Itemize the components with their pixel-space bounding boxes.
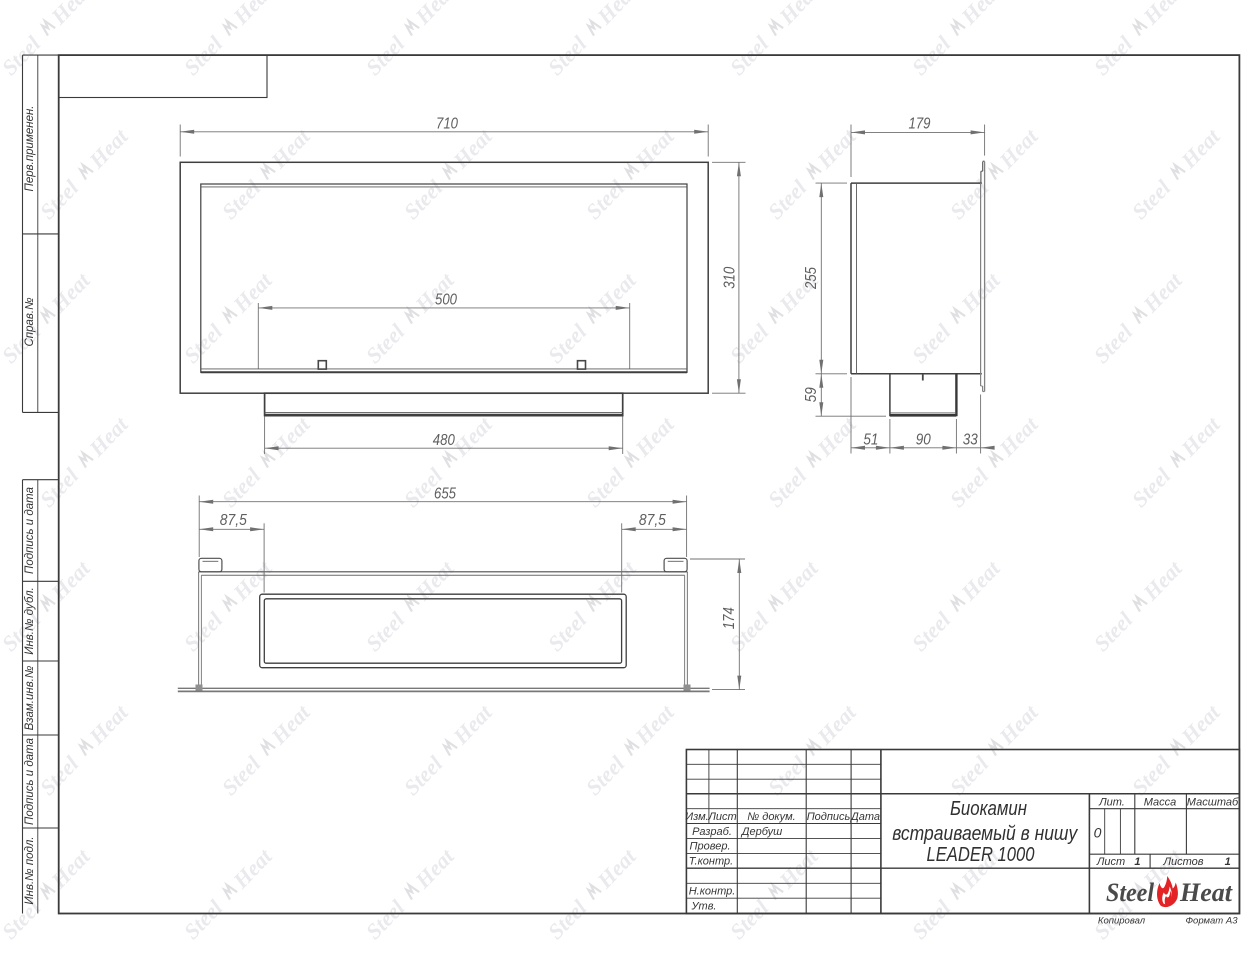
svg-text:51: 51 xyxy=(863,431,878,448)
svg-text:Масса: Масса xyxy=(1144,797,1177,809)
svg-text:Разраб.: Разраб. xyxy=(692,826,732,838)
svg-text:встраиваемый в нишу: встраиваемый в нишу xyxy=(892,823,1078,845)
svg-text:1: 1 xyxy=(1134,856,1140,868)
svg-text:Т.контр.: Т.контр. xyxy=(689,856,733,868)
svg-text:255: 255 xyxy=(803,267,820,290)
svg-text:Инв.№ дубл.: Инв.№ дубл. xyxy=(24,587,36,655)
svg-text:Формат А3: Формат А3 xyxy=(1186,916,1239,927)
svg-text:Биокамин: Биокамин xyxy=(950,798,1027,820)
svg-text:Дербуш: Дербуш xyxy=(740,826,783,838)
svg-text:Подпись и дата: Подпись и дата xyxy=(24,487,36,574)
svg-text:87,5: 87,5 xyxy=(220,512,247,529)
svg-text:87,5: 87,5 xyxy=(639,512,666,529)
svg-text:Лит.: Лит. xyxy=(1098,797,1125,809)
svg-text:Взам.инв.№: Взам.инв.№ xyxy=(24,665,36,730)
svg-text:90: 90 xyxy=(916,431,931,448)
svg-text:Листов: Листов xyxy=(1162,856,1203,868)
svg-text:Н.контр.: Н.контр. xyxy=(689,886,736,898)
svg-text:0: 0 xyxy=(1094,825,1102,841)
svg-text:Дата: Дата xyxy=(849,811,880,823)
svg-text:655: 655 xyxy=(434,485,456,502)
svg-text:174: 174 xyxy=(721,607,738,629)
svg-text:Масштаб: Масштаб xyxy=(1187,797,1239,809)
svg-text:Провер.: Провер. xyxy=(690,841,731,853)
svg-text:Подпись и дата: Подпись и дата xyxy=(24,738,36,825)
svg-text:500: 500 xyxy=(435,292,457,309)
svg-text:710: 710 xyxy=(436,116,458,133)
svg-text:179: 179 xyxy=(909,116,931,133)
svg-text:Утв.: Утв. xyxy=(691,901,717,913)
svg-text:310: 310 xyxy=(722,267,739,289)
svg-text:33: 33 xyxy=(963,431,978,448)
svg-text:Изм.: Изм. xyxy=(685,811,708,823)
svg-text:Инв.№ подл.: Инв.№ подл. xyxy=(24,836,36,904)
svg-text:Перв.применен.: Перв.применен. xyxy=(24,106,36,192)
svg-text:Копировал: Копировал xyxy=(1098,916,1146,927)
svg-text:LEADER 1000: LEADER 1000 xyxy=(927,844,1035,866)
svg-text:Steel: Steel xyxy=(1106,878,1155,907)
svg-text:480: 480 xyxy=(433,432,455,449)
svg-text:Подпись: Подпись xyxy=(807,811,851,823)
svg-text:Лист: Лист xyxy=(707,811,736,823)
svg-text:№ докум.: № докум. xyxy=(747,811,795,823)
svg-text:Heat: Heat xyxy=(1179,878,1233,907)
svg-text:Лист: Лист xyxy=(1096,856,1125,868)
svg-text:59: 59 xyxy=(803,387,820,402)
svg-text:1: 1 xyxy=(1225,856,1231,868)
svg-text:Справ.№: Справ.№ xyxy=(24,297,36,347)
